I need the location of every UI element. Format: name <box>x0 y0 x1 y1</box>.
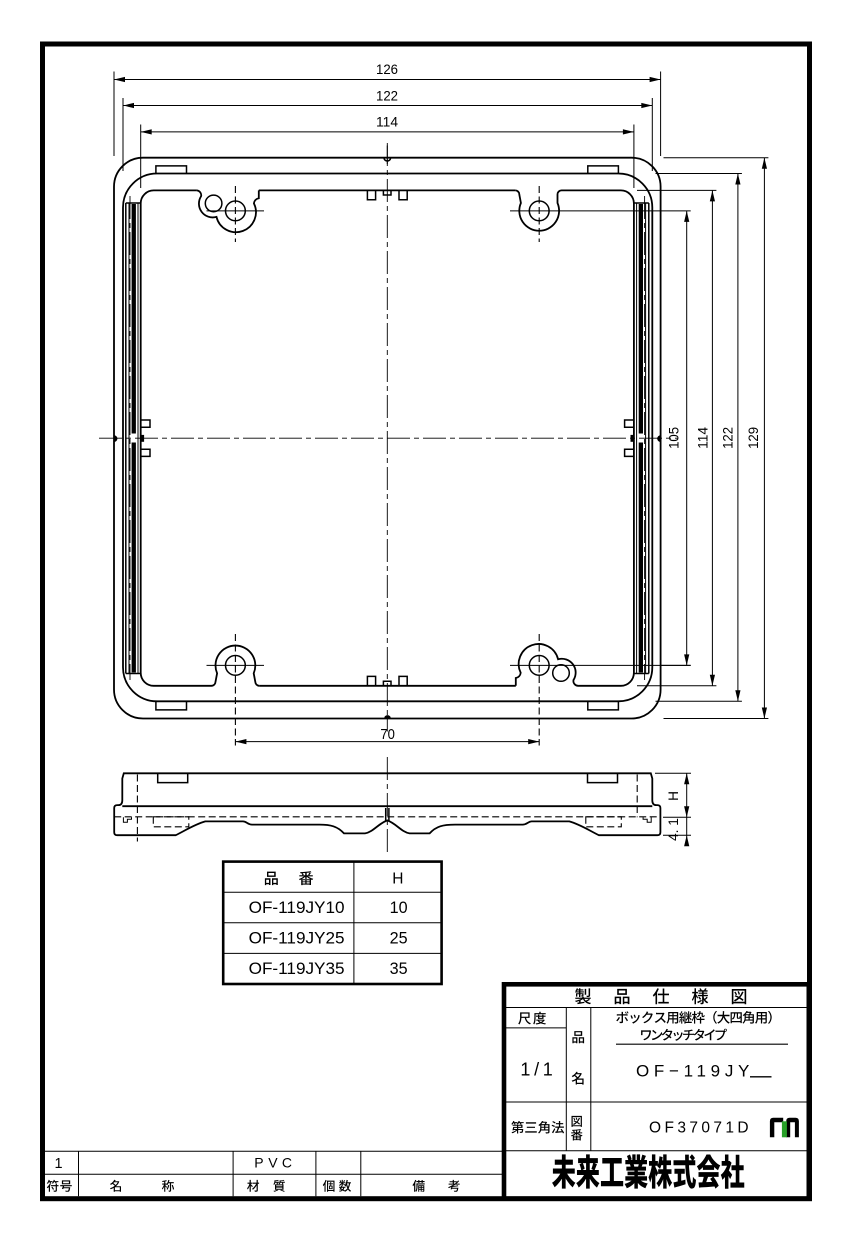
svg-text:25: 25 <box>390 929 408 948</box>
svg-text:114: 114 <box>376 115 398 130</box>
svg-text:4. 1: 4. 1 <box>666 818 681 841</box>
svg-text:126: 126 <box>376 62 398 77</box>
svg-text:1: 1 <box>520 1060 530 1080</box>
svg-text:OF-119JY25: OF-119JY25 <box>249 929 345 948</box>
svg-text:C: C <box>282 1155 292 1171</box>
svg-text:129: 129 <box>746 427 761 449</box>
svg-text:70: 70 <box>380 726 395 743</box>
svg-text:122: 122 <box>376 88 398 103</box>
svg-text:35: 35 <box>390 959 408 978</box>
svg-text:OF-119JY35: OF-119JY35 <box>249 959 345 978</box>
svg-text:OF37071D: OF37071D <box>649 1119 752 1136</box>
svg-text:1: 1 <box>543 1060 553 1080</box>
svg-text:122: 122 <box>721 427 736 449</box>
svg-text:10: 10 <box>390 898 408 917</box>
svg-text:1: 1 <box>55 1156 63 1172</box>
svg-text:105: 105 <box>666 427 681 449</box>
svg-text:V: V <box>268 1155 278 1171</box>
svg-text:114: 114 <box>696 426 711 448</box>
svg-text:H: H <box>666 791 681 801</box>
svg-text:/: / <box>534 1060 539 1080</box>
svg-text:P: P <box>254 1155 263 1171</box>
svg-text:OF−119JY: OF−119JY <box>636 1061 754 1080</box>
svg-text:OF-119JY10: OF-119JY10 <box>249 898 345 917</box>
svg-text:H: H <box>392 870 403 887</box>
